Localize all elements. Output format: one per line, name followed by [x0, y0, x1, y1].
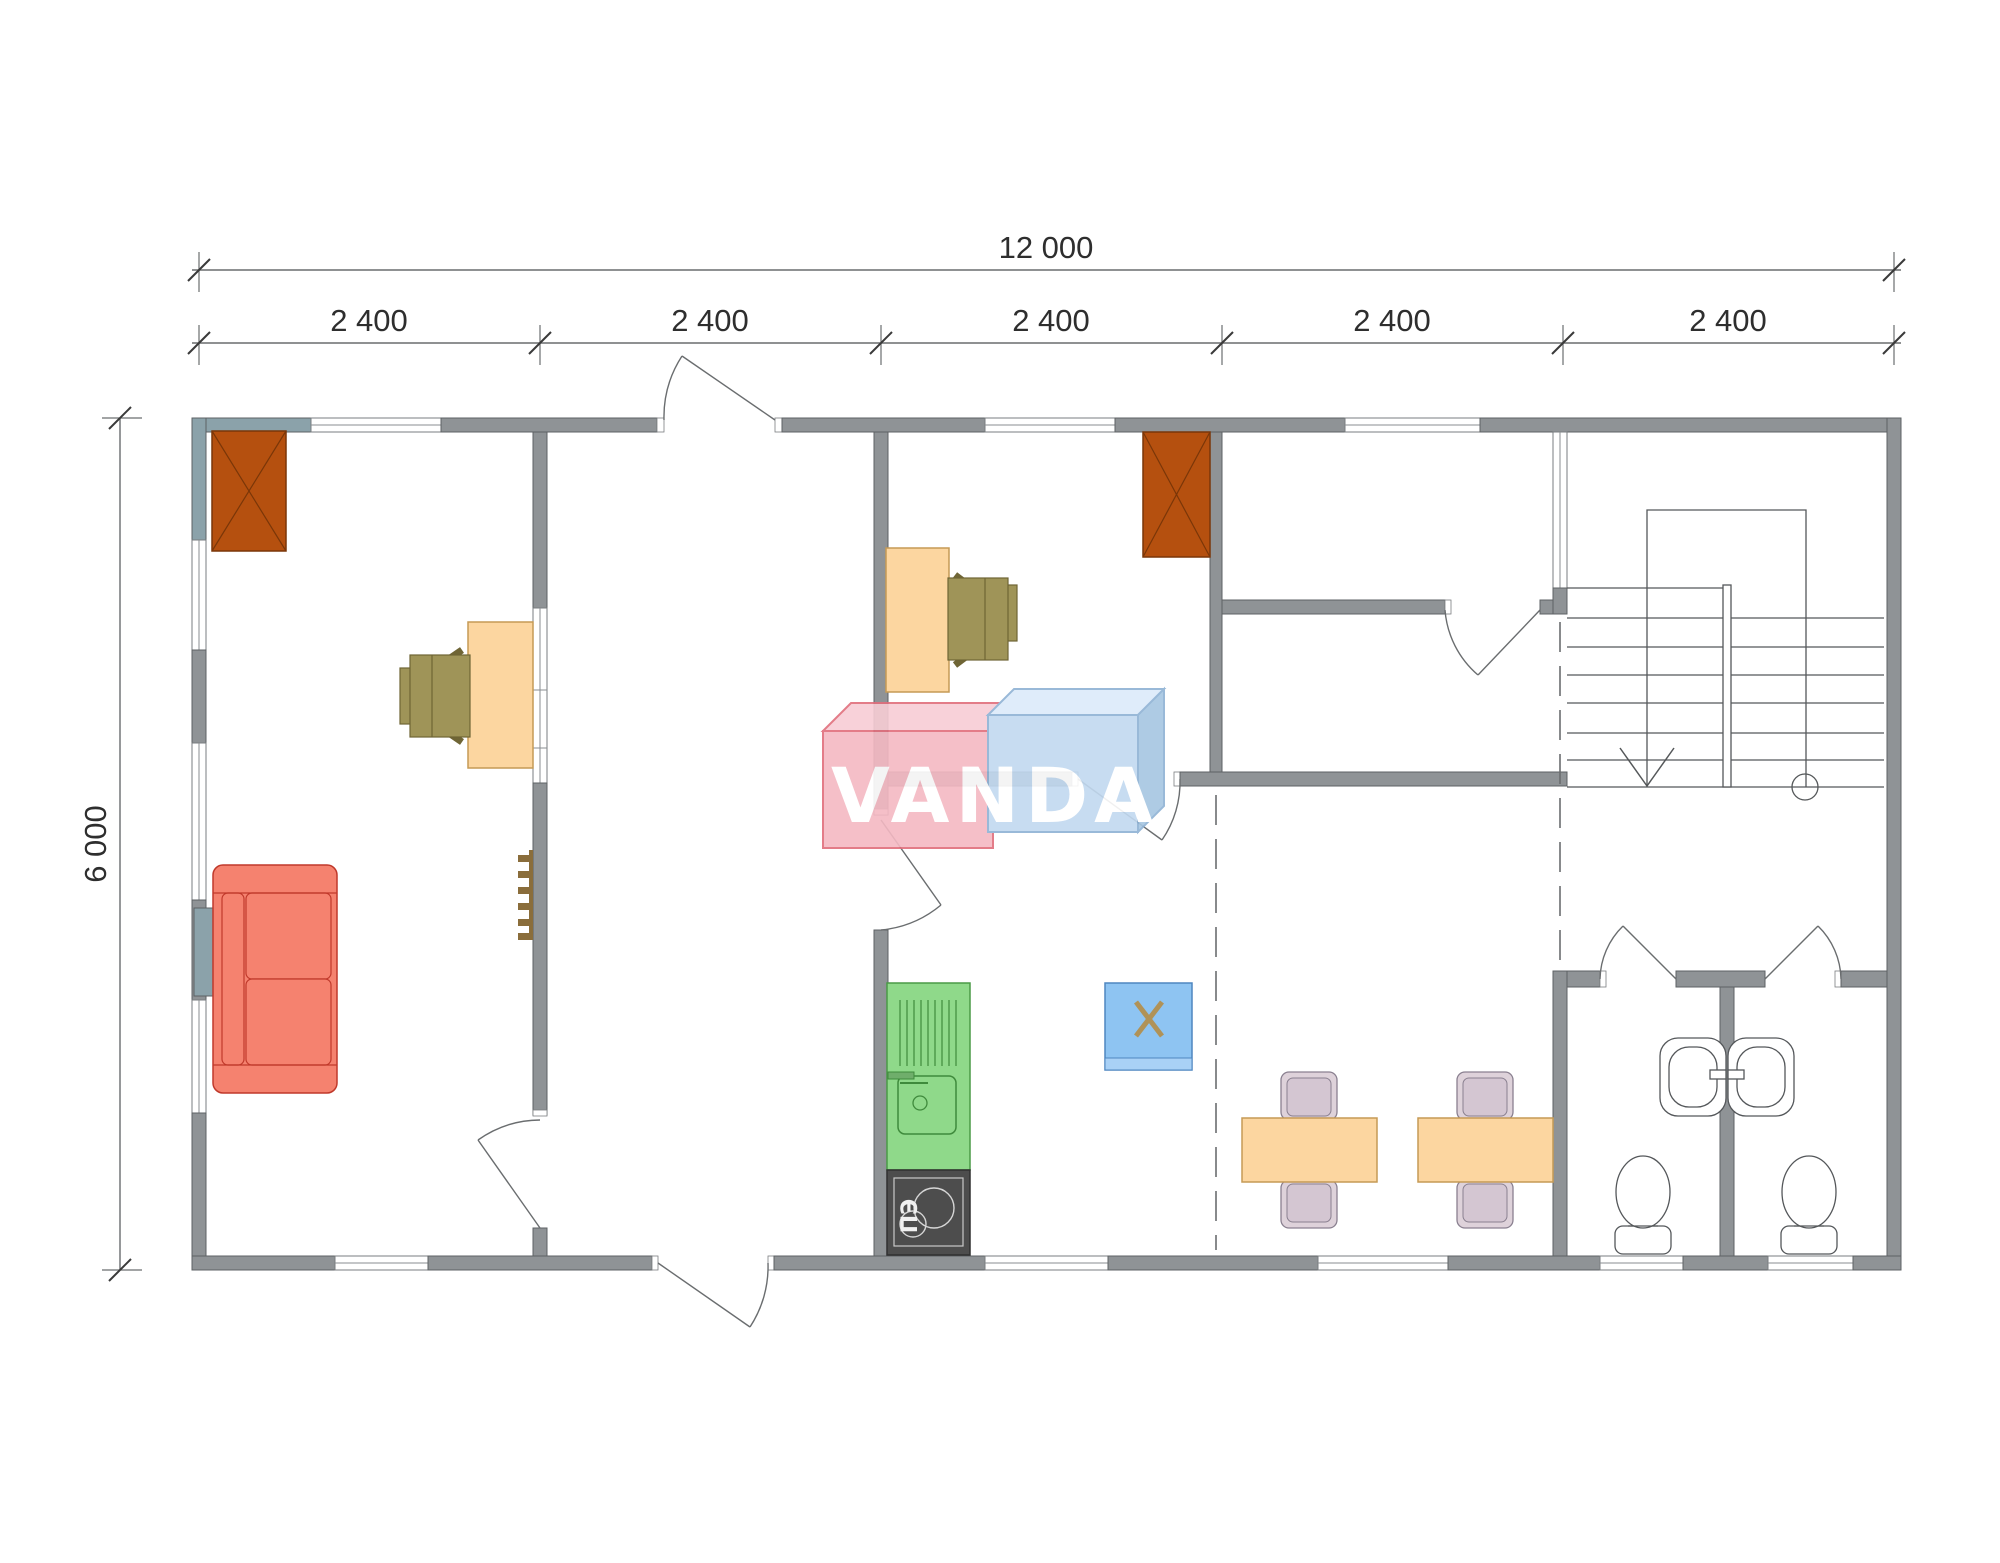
toilet-right [1781, 1156, 1837, 1254]
logo-text: VANDA [831, 751, 1159, 840]
washbasin-right [1728, 1038, 1794, 1116]
dining-set-1 [1242, 1072, 1377, 1228]
staircase [1567, 510, 1884, 800]
office-desk-2 [886, 548, 949, 692]
dining-chair [1457, 1072, 1513, 1120]
office-chair-2 [948, 575, 1017, 665]
chimney-flue-left [212, 431, 286, 551]
kitchen-sink-counter [887, 983, 970, 1170]
dim-total-height-label: 6 000 [78, 805, 113, 883]
wc1-door [1600, 926, 1676, 979]
living-room-door [478, 1120, 540, 1228]
toilet-left [1615, 1156, 1671, 1254]
dimension-total-height: 6 000 [78, 407, 142, 1281]
entrance-door-top [664, 356, 775, 420]
bay4-room-door [1445, 610, 1540, 675]
dim-bay-3: 2 400 [1012, 303, 1090, 338]
dimension-total-width: 12 000 [188, 230, 1905, 292]
water-heater [1105, 983, 1192, 1070]
dining-table [1418, 1118, 1553, 1182]
dining-set-2 [1418, 1072, 1553, 1228]
office-chair-1 [400, 650, 470, 742]
electric-stove: ПЭ [887, 1170, 970, 1255]
wall-radiator [518, 850, 531, 940]
office-desk-1 [468, 622, 533, 768]
dining-table [1242, 1118, 1377, 1182]
radiator-panel [194, 908, 214, 996]
dimension-bays: 2 400 2 400 2 400 2 400 2 400 [188, 303, 1905, 365]
wc2-door [1765, 926, 1841, 979]
dining-chair [1457, 1180, 1513, 1228]
exterior-walls [192, 418, 1901, 1270]
stove-label: ПЭ [898, 1199, 923, 1234]
floor-plan-canvas: 12 000 2 400 2 400 2 400 2 400 2 400 6 0… [0, 0, 2000, 1563]
dim-bay-4: 2 400 [1353, 303, 1431, 338]
stair-railing [1723, 585, 1731, 787]
dining-chair [1281, 1180, 1337, 1228]
sofa [213, 865, 337, 1093]
dim-total-width-label: 12 000 [999, 230, 1094, 265]
chimney-flue-right [1143, 432, 1210, 557]
vanda-logo: VANDA [823, 689, 1164, 848]
dim-bay-2: 2 400 [671, 303, 749, 338]
dim-bay-5: 2 400 [1689, 303, 1767, 338]
dining-chair [1281, 1072, 1337, 1120]
dim-bay-1: 2 400 [330, 303, 408, 338]
entrance-door-bottom [658, 1263, 768, 1327]
washbasin-left [1660, 1038, 1726, 1116]
